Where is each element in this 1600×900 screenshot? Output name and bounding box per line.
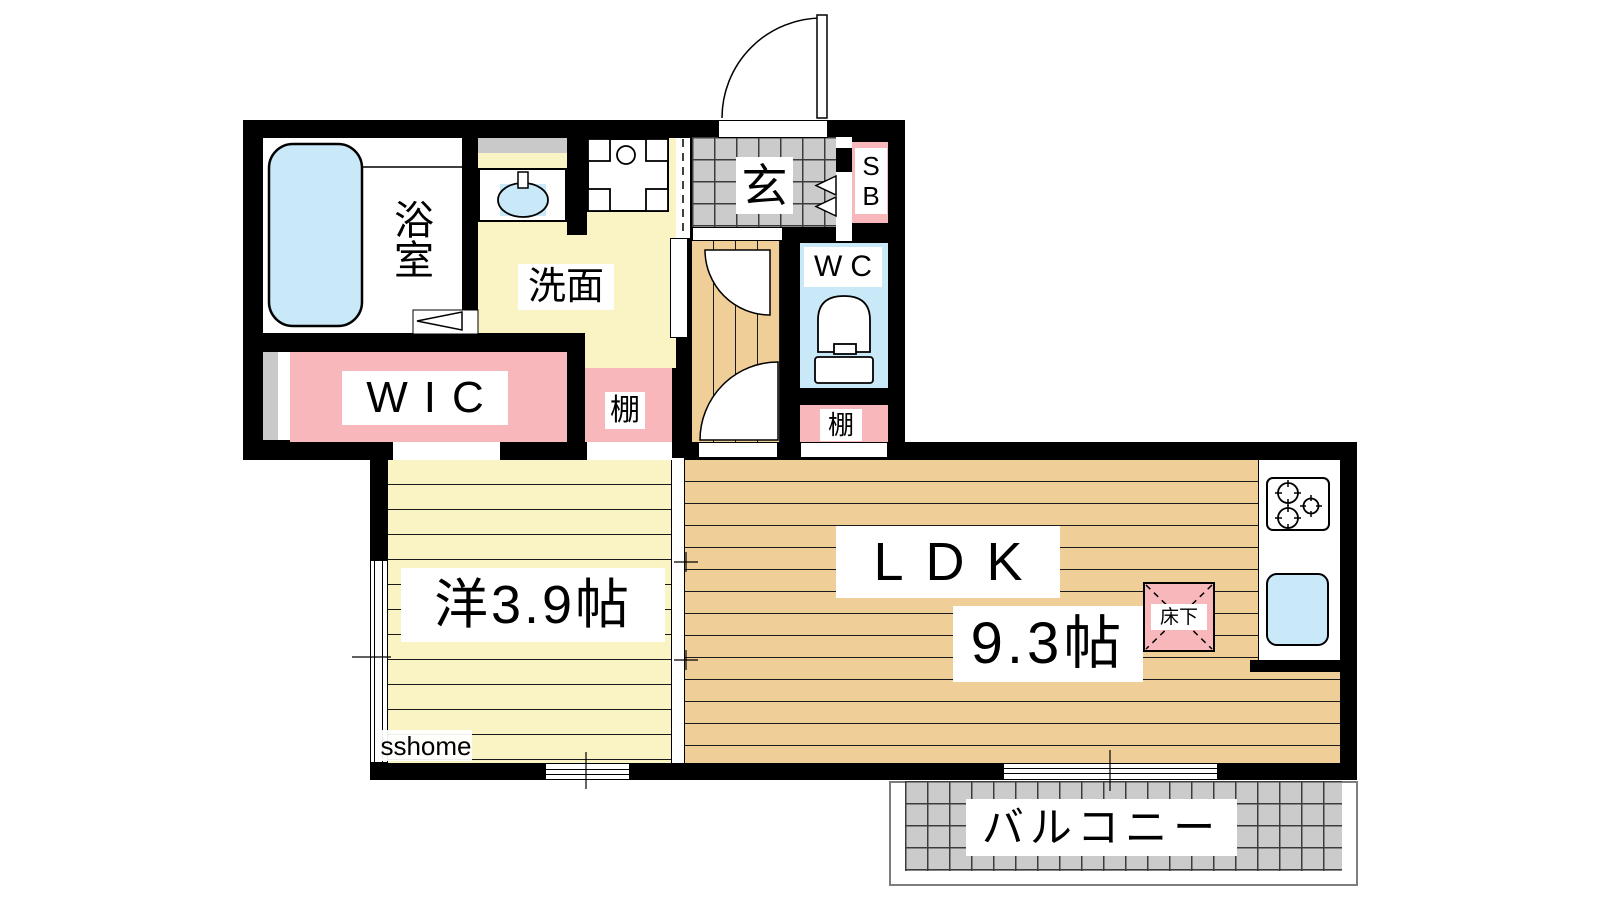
washing-machine-icon: [588, 139, 668, 211]
entrance-door-arc-icon: [722, 18, 822, 118]
shoe-box-arrow-icon: [816, 176, 836, 195]
bathtub-icon: [269, 144, 362, 326]
shoe-box-label: SB: [855, 148, 887, 214]
entrance-door-leaf: [817, 15, 827, 118]
door-swing-arc-icon: [700, 362, 778, 440]
balcony-label: バルコニー: [966, 799, 1237, 856]
underfloor-storage-label: 床下: [1151, 604, 1207, 630]
shelf-lower-label: 棚: [820, 409, 862, 441]
wic-label: WIC: [342, 371, 508, 425]
entrance-label: 玄: [736, 157, 793, 214]
door-swing-arc-icon: [705, 250, 770, 315]
floor-plan: 浴室 洗面 WIC 玄 SB WC 棚 棚 洋3.9帖 LDK 9.3帖 床下 …: [0, 0, 1600, 900]
shoe-box-arrow-icon: [816, 197, 836, 216]
bathroom-label: 浴室: [386, 183, 434, 295]
wc-label: WC: [804, 247, 882, 287]
ldk-size-label: 9.3帖: [953, 606, 1143, 682]
washroom-label: 洗面: [518, 264, 614, 310]
washbasin-tap-icon: [518, 172, 528, 188]
fixtures-overlay: [0, 0, 1600, 900]
western-room-label: 洋3.9帖: [401, 568, 665, 642]
stove-icon: [1267, 478, 1329, 531]
watermark: sshome: [380, 730, 472, 761]
kitchen-sink-icon: [1267, 574, 1328, 645]
toilet-icon: [815, 296, 873, 383]
ldk-label: LDK: [836, 526, 1060, 598]
shelf-upper-label: 棚: [605, 392, 645, 429]
